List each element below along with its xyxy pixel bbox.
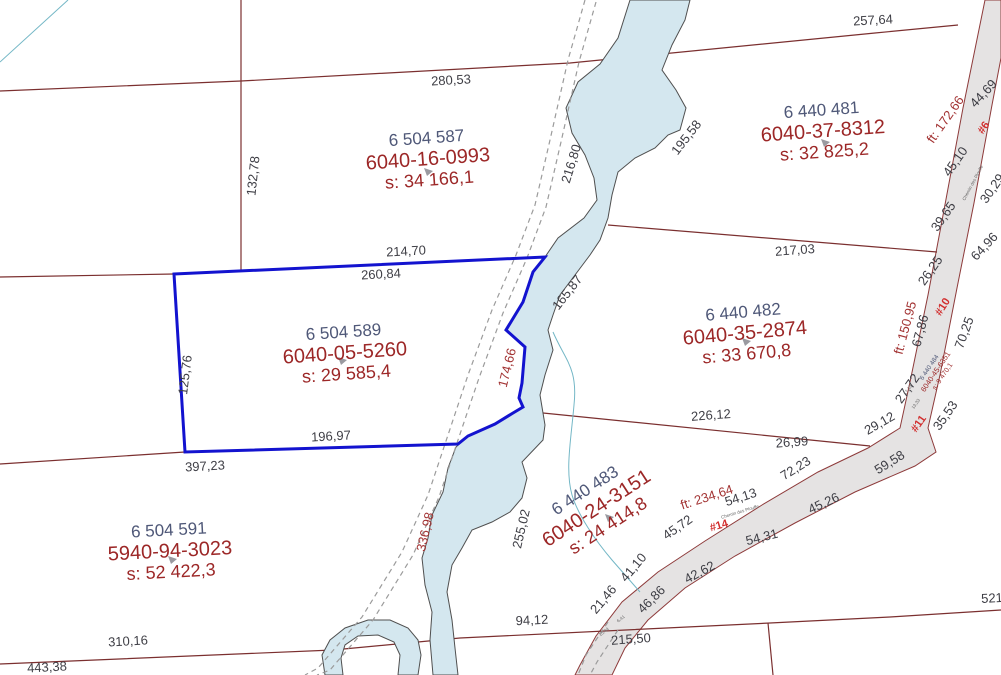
dimension-label: 35,53 bbox=[930, 398, 961, 433]
dimension-label: 26,99 bbox=[775, 433, 809, 450]
parcel-label-6-504-589[interactable]: 6 504 5896040-05-5260s: 29 585,4 bbox=[281, 318, 410, 388]
dimension-label: 215,50 bbox=[611, 630, 652, 648]
dimension-label: 226,12 bbox=[691, 406, 732, 424]
dimension-label: 174,66 bbox=[495, 347, 519, 389]
dimension-label: 257,64 bbox=[853, 11, 893, 28]
boundary-line-south bbox=[0, 610, 1001, 664]
parcel-area: s: 52 422,3 bbox=[126, 559, 216, 584]
cadastral-map[interactable]: 6 504 5876040-16-0993s: 34 166,16 440 48… bbox=[0, 0, 1001, 675]
dimension-label: 310,16 bbox=[108, 632, 148, 649]
map-canvas: 6 504 5876040-16-0993s: 34 166,16 440 48… bbox=[0, 0, 1001, 675]
parcel-label-6-504-591[interactable]: 6 504 5915940-94-3023s: 52 422,3 bbox=[106, 517, 234, 585]
parcel-label-6-504-587[interactable]: 6 504 5876040-16-0993s: 34 166,1 bbox=[364, 124, 493, 194]
parcel-label-6-440-481[interactable]: 6 440 4816040-37-8312s: 32 825,2 bbox=[759, 96, 888, 166]
dimension-label: 45,72 bbox=[660, 512, 695, 543]
dimension-label: 94,12 bbox=[515, 612, 548, 629]
boundary-line-left bbox=[0, 274, 174, 277]
dimension-label: 217,03 bbox=[775, 241, 816, 259]
dimension-label: 70,25 bbox=[951, 315, 976, 351]
dimension-label: 132,78 bbox=[243, 155, 262, 196]
dimension-label: 196,97 bbox=[311, 427, 351, 444]
oxbow-polygon bbox=[322, 620, 421, 675]
boundary-line-north bbox=[0, 25, 958, 91]
dimension-label: 260,84 bbox=[361, 265, 401, 282]
dimension-label: 64,96 bbox=[968, 229, 1001, 263]
parcel-label-6-440-482[interactable]: 6 440 4826040-35-2874s: 33 670,8 bbox=[680, 297, 809, 369]
dimension-label: 521 bbox=[981, 590, 1001, 606]
dimension-label: 443,38 bbox=[27, 658, 67, 675]
creek-line bbox=[553, 332, 640, 592]
dimension-label: 30,29 bbox=[977, 171, 1001, 206]
parcel-label-6-440-483[interactable]: 6 440 4836040-24-3151s: 24 414,8 bbox=[528, 449, 666, 568]
boundary-line-481-482 bbox=[608, 225, 937, 252]
dimension-label: 280,53 bbox=[431, 71, 471, 88]
corner-creek-line bbox=[0, 0, 68, 62]
dimension-label: 397,23 bbox=[185, 457, 225, 474]
boundary-line-589-591 bbox=[0, 452, 185, 464]
dimension-label: 214,70 bbox=[386, 242, 426, 259]
dimension-label: 216,80 bbox=[558, 142, 584, 184]
dimension-label: 41,10 bbox=[617, 550, 649, 585]
boundary-line-south-stub bbox=[768, 623, 773, 675]
dimension-label: 255,02 bbox=[509, 508, 533, 550]
